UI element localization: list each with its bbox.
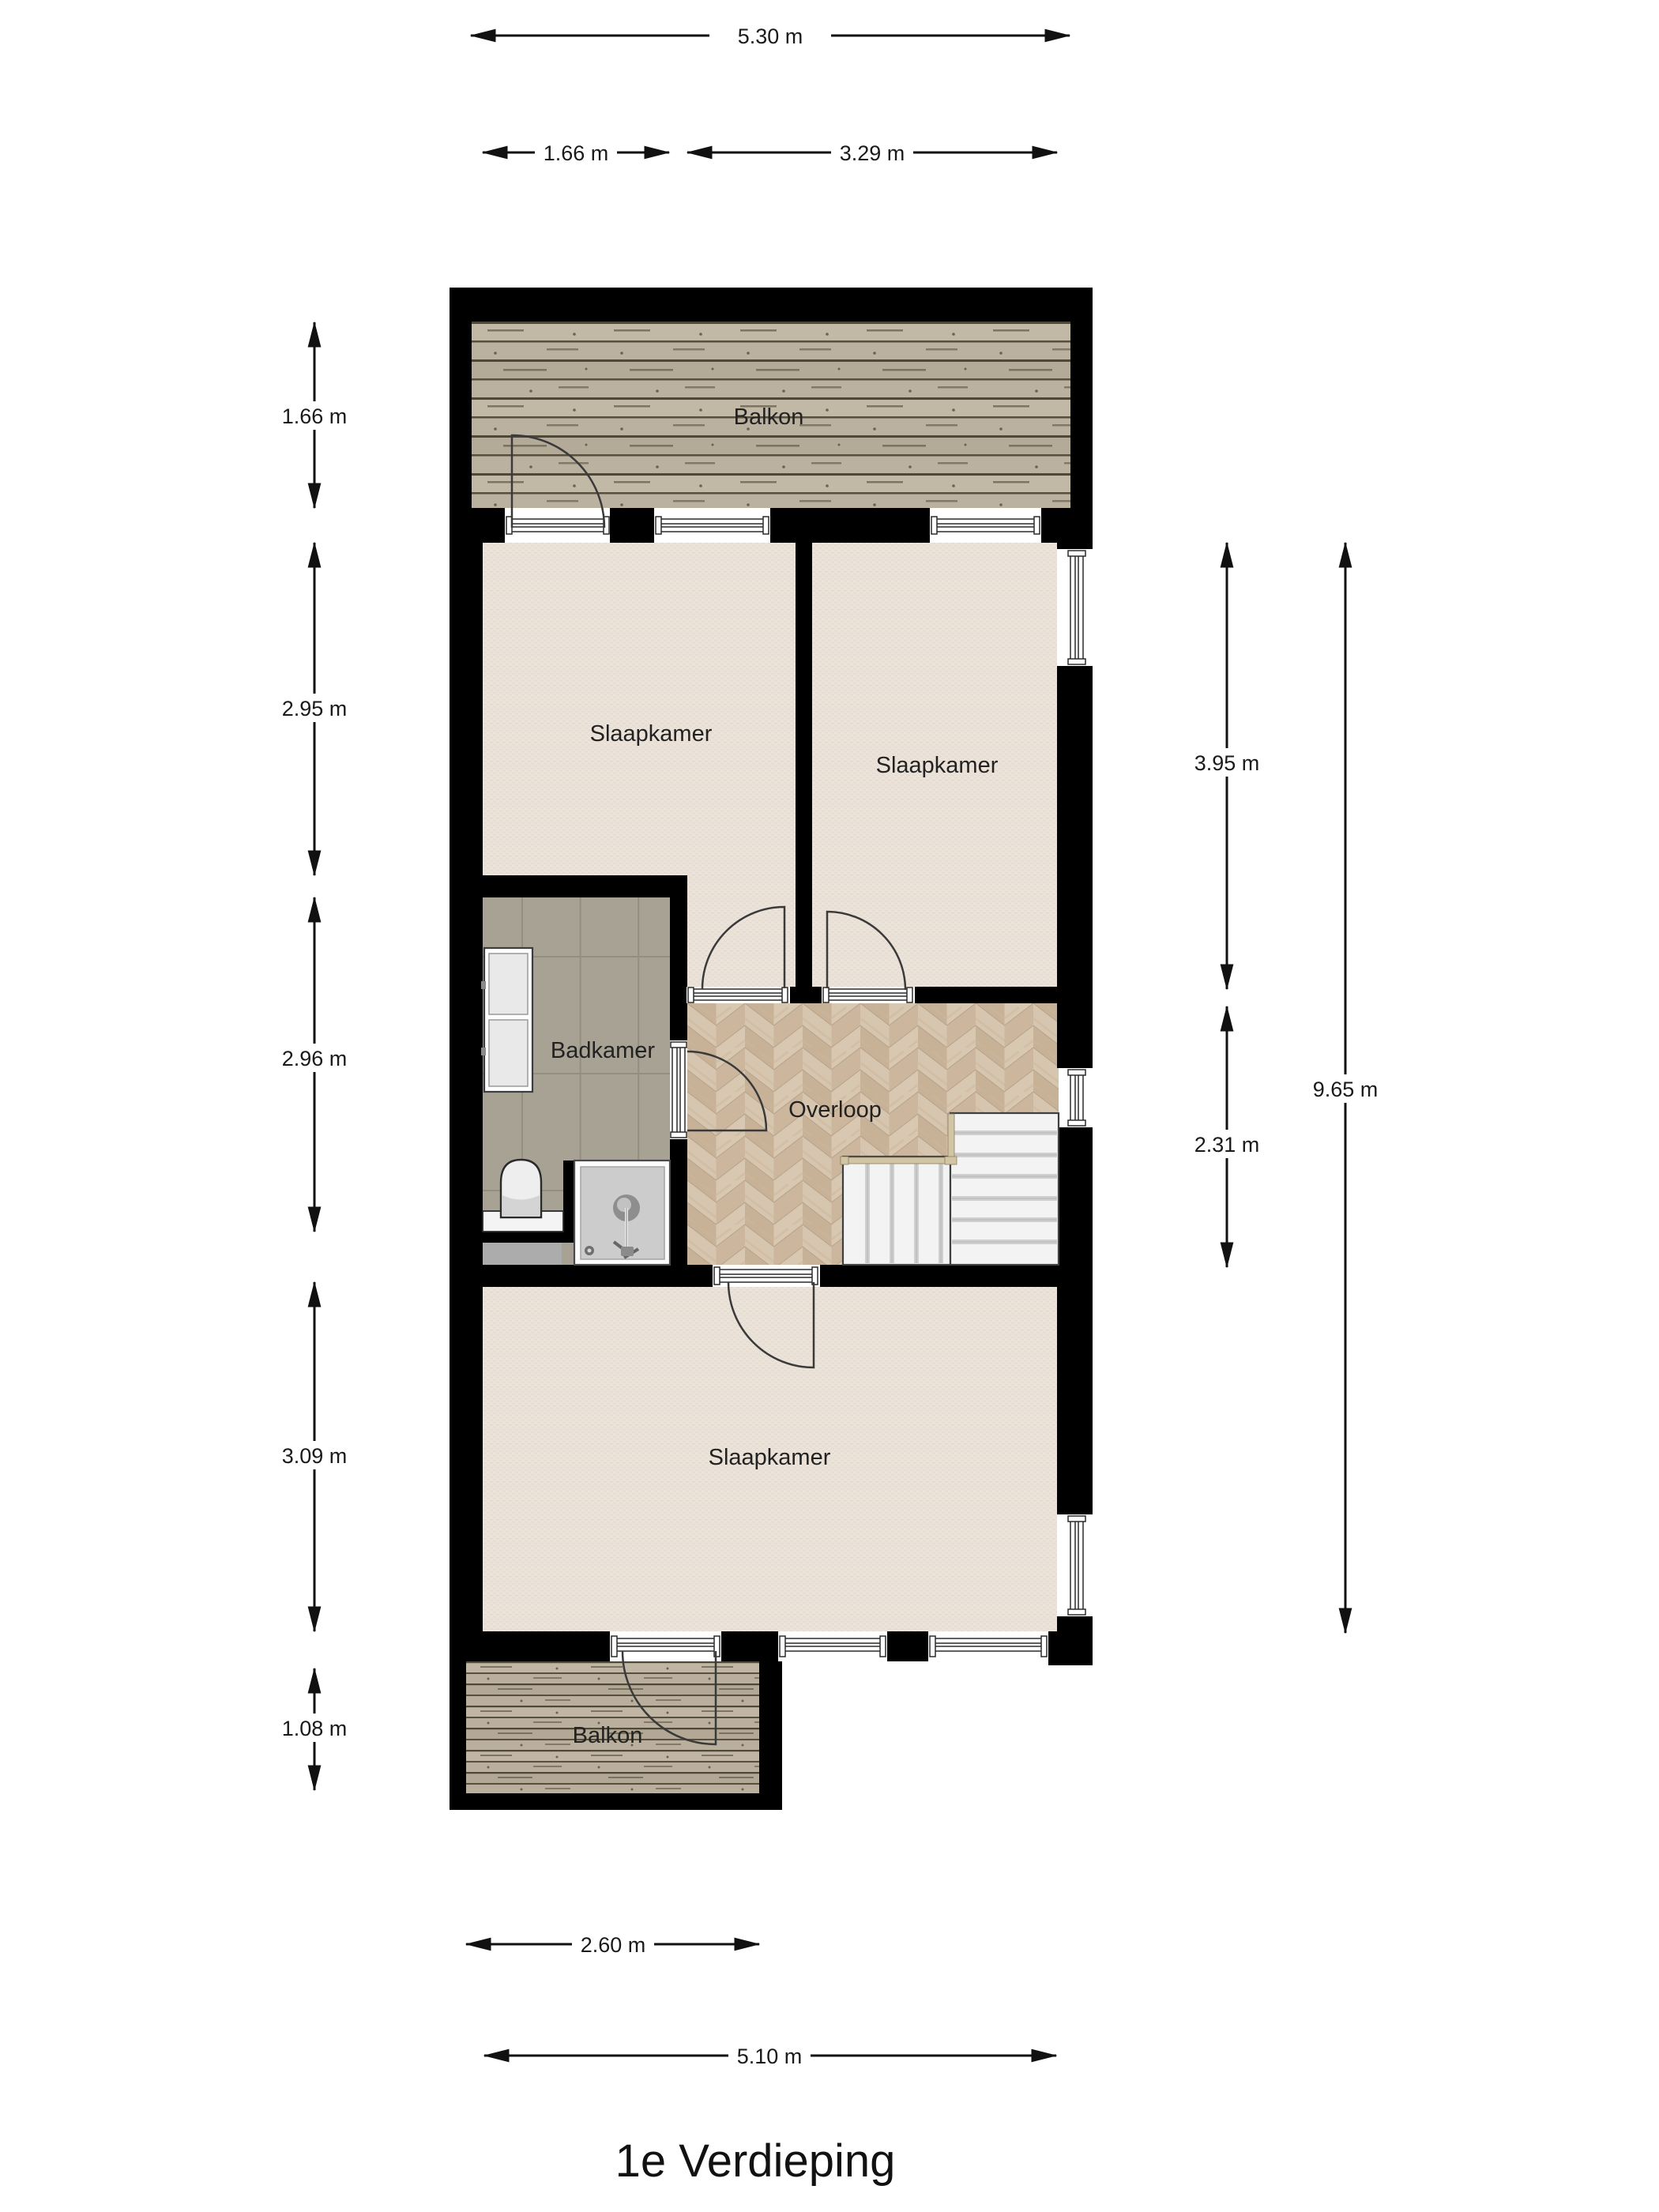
svg-text:1.66 m: 1.66 m bbox=[544, 141, 609, 165]
svg-text:1e Verdieping: 1e Verdieping bbox=[615, 2135, 896, 2187]
svg-text:5.30 m: 5.30 m bbox=[738, 24, 803, 48]
svg-text:Balkon: Balkon bbox=[573, 1723, 643, 1748]
svg-text:2.96 m: 2.96 m bbox=[282, 1047, 348, 1070]
svg-text:2.31 m: 2.31 m bbox=[1194, 1133, 1260, 1157]
svg-text:5.10 m: 5.10 m bbox=[737, 2045, 803, 2068]
svg-text:2.60 m: 2.60 m bbox=[581, 1933, 646, 1957]
svg-text:Slaapkamer: Slaapkamer bbox=[590, 721, 713, 747]
svg-text:3.95 m: 3.95 m bbox=[1194, 751, 1260, 775]
svg-text:9.65 m: 9.65 m bbox=[1313, 1078, 1379, 1101]
svg-text:Slaapkamer: Slaapkamer bbox=[876, 753, 999, 778]
svg-text:3.09 m: 3.09 m bbox=[282, 1444, 348, 1468]
svg-text:1.66 m: 1.66 m bbox=[282, 404, 348, 428]
svg-text:2.95 m: 2.95 m bbox=[282, 697, 348, 720]
svg-text:Badkamer: Badkamer bbox=[551, 1038, 656, 1063]
svg-text:Balkon: Balkon bbox=[734, 404, 804, 430]
svg-text:3.29 m: 3.29 m bbox=[840, 141, 905, 165]
svg-text:Slaapkamer: Slaapkamer bbox=[709, 1445, 831, 1470]
svg-text:Overloop: Overloop bbox=[788, 1097, 882, 1123]
svg-text:1.08 m: 1.08 m bbox=[282, 1717, 348, 1740]
